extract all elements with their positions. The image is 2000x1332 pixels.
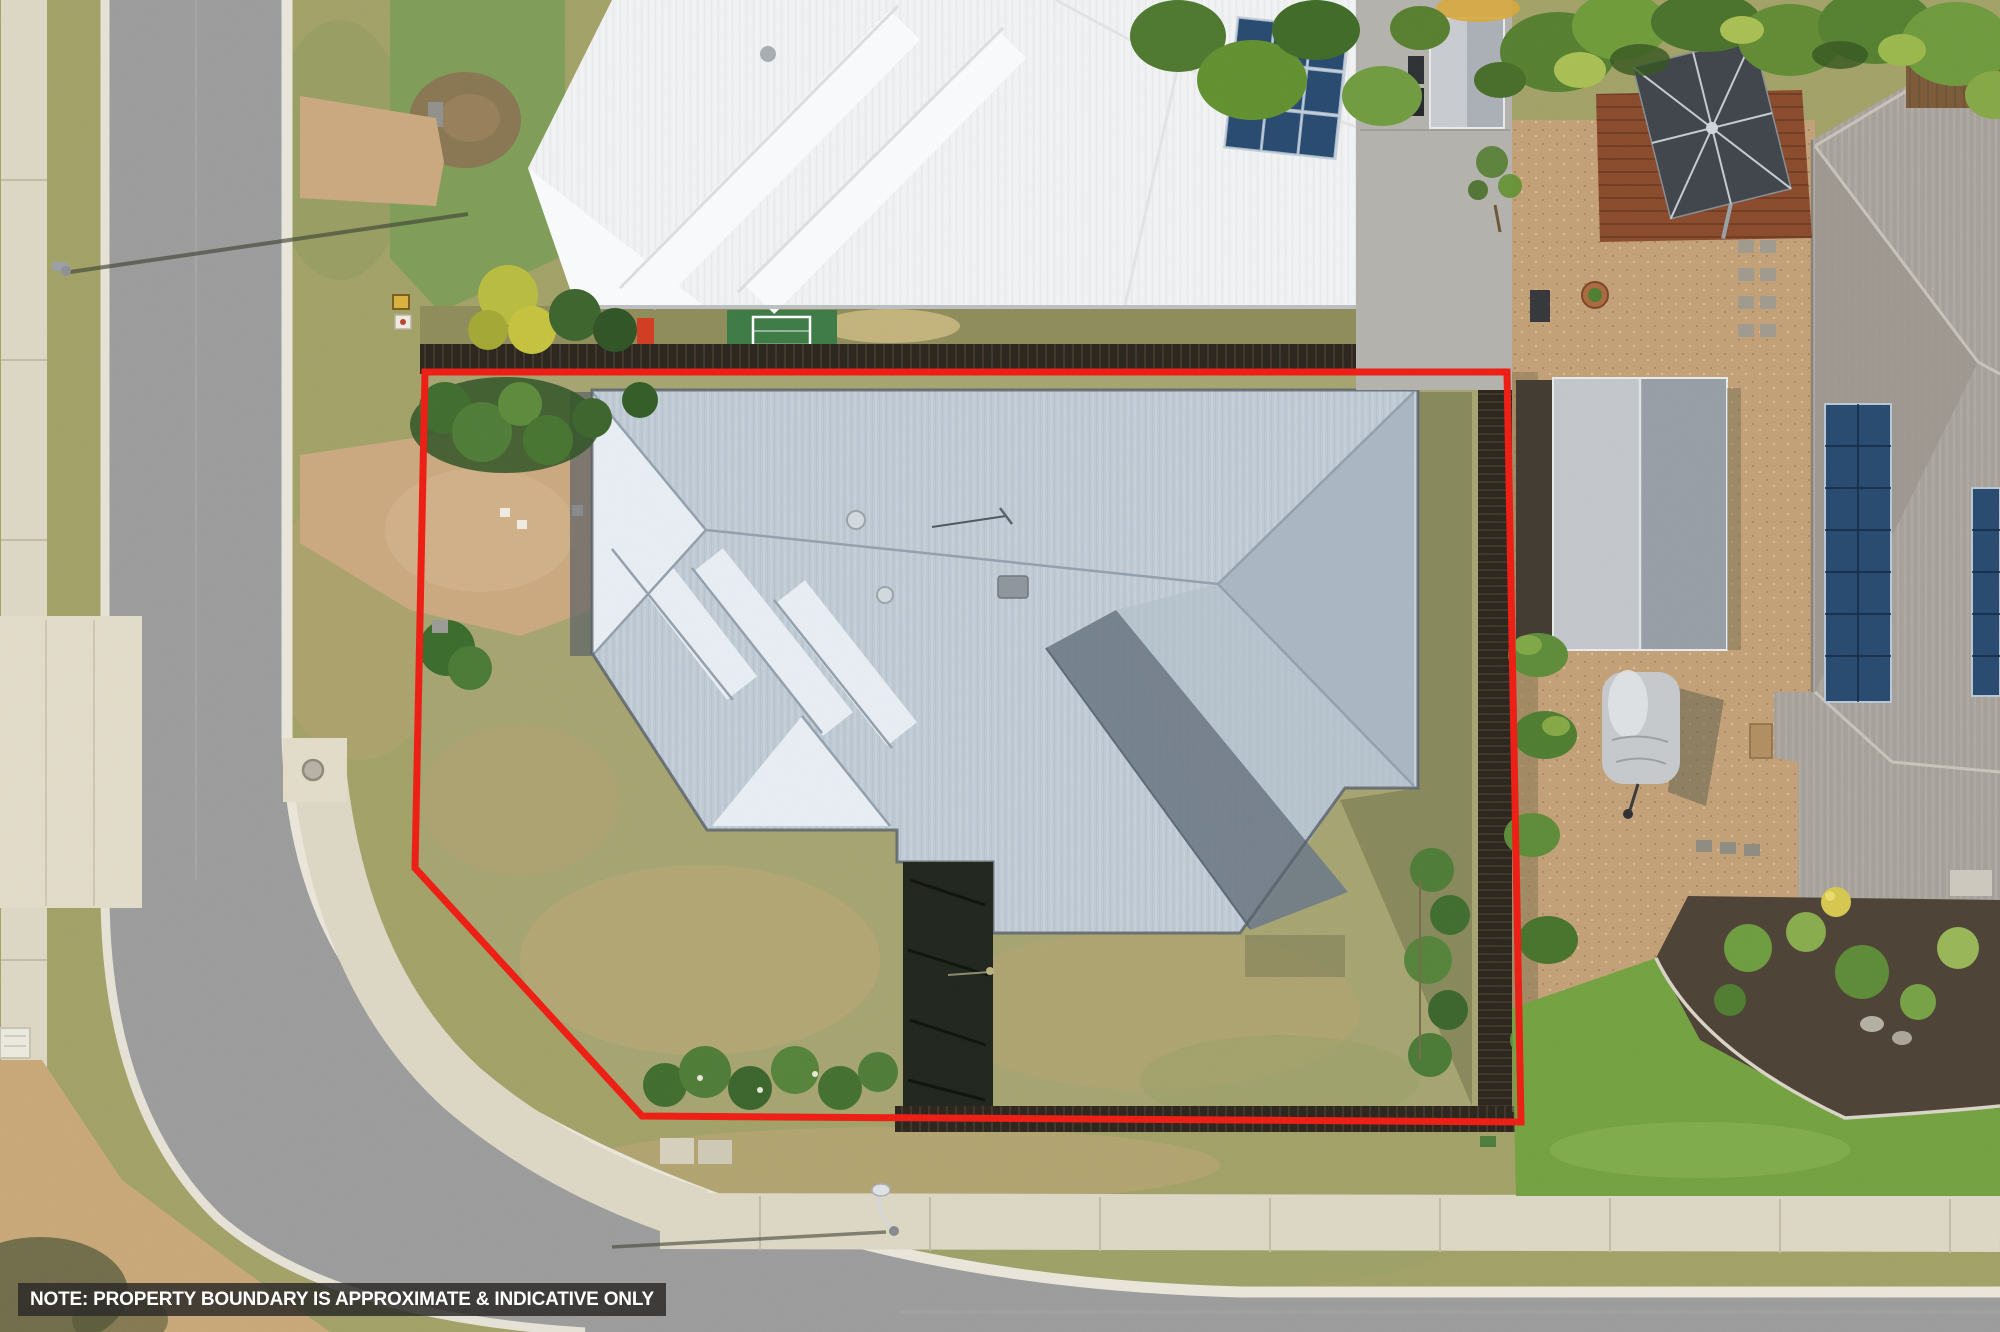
photo-grain [0,0,2000,1332]
disclaimer-bar: NOTE: PROPERTY BOUNDARY IS APPROXIMATE &… [18,1283,666,1316]
aerial-photo: NOTE: PROPERTY BOUNDARY IS APPROXIMATE &… [0,0,2000,1332]
disclaimer-text: NOTE: PROPERTY BOUNDARY IS APPROXIMATE &… [30,1289,654,1311]
aerial-photo-canvas [0,0,2000,1332]
